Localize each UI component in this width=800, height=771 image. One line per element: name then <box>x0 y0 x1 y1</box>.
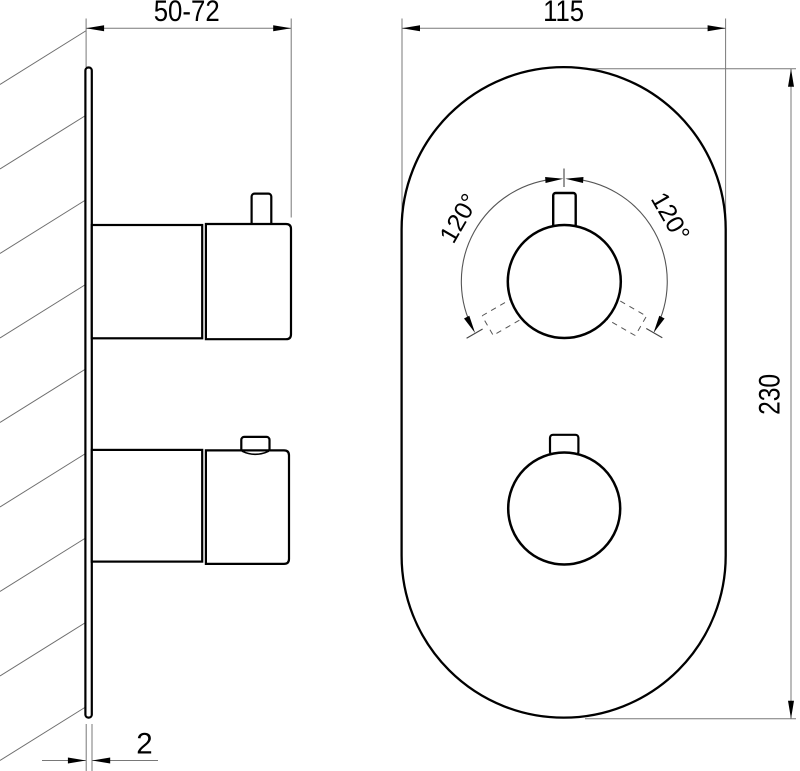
svg-text:115: 115 <box>543 0 584 28</box>
svg-text:230: 230 <box>754 374 787 415</box>
svg-text:2: 2 <box>136 728 152 761</box>
svg-text:50-72: 50-72 <box>154 0 220 28</box>
